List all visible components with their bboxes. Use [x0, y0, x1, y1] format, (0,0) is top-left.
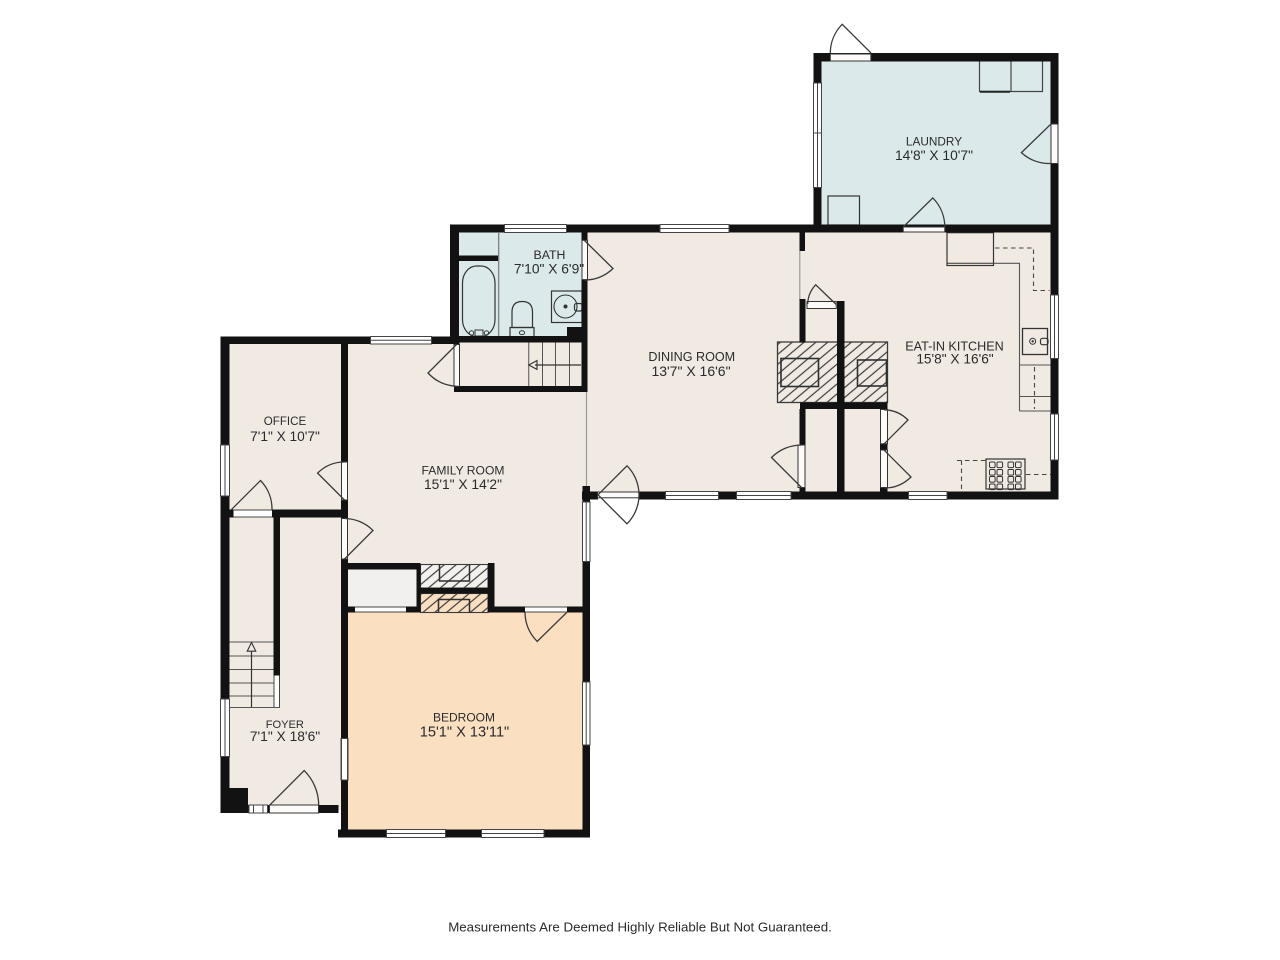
svg-text:BEDROOM: BEDROOM [433, 710, 495, 724]
svg-text:7'1" X 10'7": 7'1" X 10'7" [250, 429, 320, 444]
svg-text:Measurements Are Deemed Highly: Measurements Are Deemed Highly Reliable … [448, 920, 832, 935]
svg-text:15'1" X 13'11": 15'1" X 13'11" [420, 724, 510, 740]
svg-text:15'1" X 14'2": 15'1" X 14'2" [424, 477, 502, 492]
svg-text:FAMILY ROOM: FAMILY ROOM [422, 464, 505, 478]
svg-text:7'1" X 18'6": 7'1" X 18'6" [250, 729, 320, 744]
svg-text:OFFICE: OFFICE [264, 415, 307, 428]
svg-text:BATH: BATH [534, 248, 566, 262]
svg-text:15'8" X 16'6": 15'8" X 16'6" [916, 352, 993, 367]
svg-text:13'7" X 16'6": 13'7" X 16'6" [651, 363, 730, 379]
svg-text:LAUNDRY: LAUNDRY [906, 135, 962, 149]
svg-text:14'8" X 10'7": 14'8" X 10'7" [895, 148, 973, 163]
svg-text:7'10" X 6'9": 7'10" X 6'9" [514, 261, 584, 276]
